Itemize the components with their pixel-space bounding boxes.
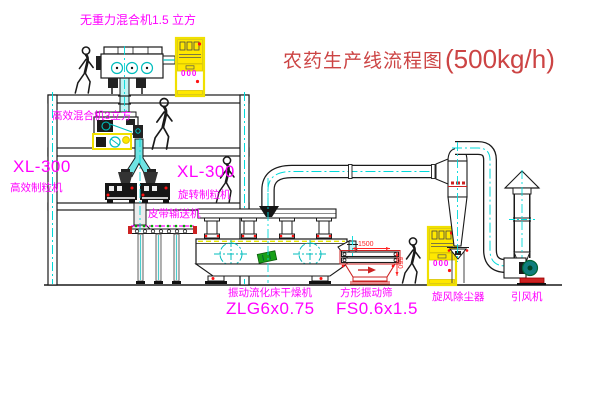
label-granulator-right-model: XL-300 <box>177 163 235 180</box>
diagram-title: 农药生产线流程图 (500kg/h) <box>283 48 555 71</box>
label-screen-model: FS0.6x1.5 <box>336 300 418 317</box>
dimension-length: 1500 <box>358 241 374 248</box>
flow-diagram-canvas: 农药生产线流程图 (500kg/h) 无重力混合机1.5 立方 高效混合机3立方… <box>0 0 600 403</box>
cabinet-2-display: 000 <box>433 260 449 268</box>
label-fan: 引风机 <box>511 292 543 303</box>
title-chinese: 农药生产线流程图 <box>283 52 443 71</box>
belt-conveyor <box>128 225 197 284</box>
label-granulator-left-model: XL-300 <box>13 158 71 175</box>
cabinet-1-display: 000 <box>181 70 197 78</box>
label-granulator-left-name: 高效制粒机 <box>10 183 63 194</box>
label-gravity-mixer: 无重力混合机1.5 立方 <box>80 14 196 26</box>
label-screen-name: 方形振动筛 <box>340 288 393 299</box>
label-belt-conveyor: 皮带输送机 <box>148 209 201 220</box>
dimension-height: 550 <box>396 257 403 269</box>
label-dryer-name: 振动流化床干燥机 <box>228 288 312 299</box>
label-granulator-right-name: 旋转制粒机 <box>178 190 231 201</box>
control-cabinet-1 <box>176 38 204 96</box>
granulators <box>105 169 170 203</box>
label-mixer-3d: 高效混合机3立方 <box>52 111 131 122</box>
fluid-bed-dryer <box>196 209 357 284</box>
label-cyclone: 旋风除尘器 <box>432 292 485 303</box>
induced-draft-fan <box>504 258 546 286</box>
title-capacity: (500kg/h) <box>445 48 555 71</box>
label-dryer-model: ZLG6x0.75 <box>226 300 315 317</box>
